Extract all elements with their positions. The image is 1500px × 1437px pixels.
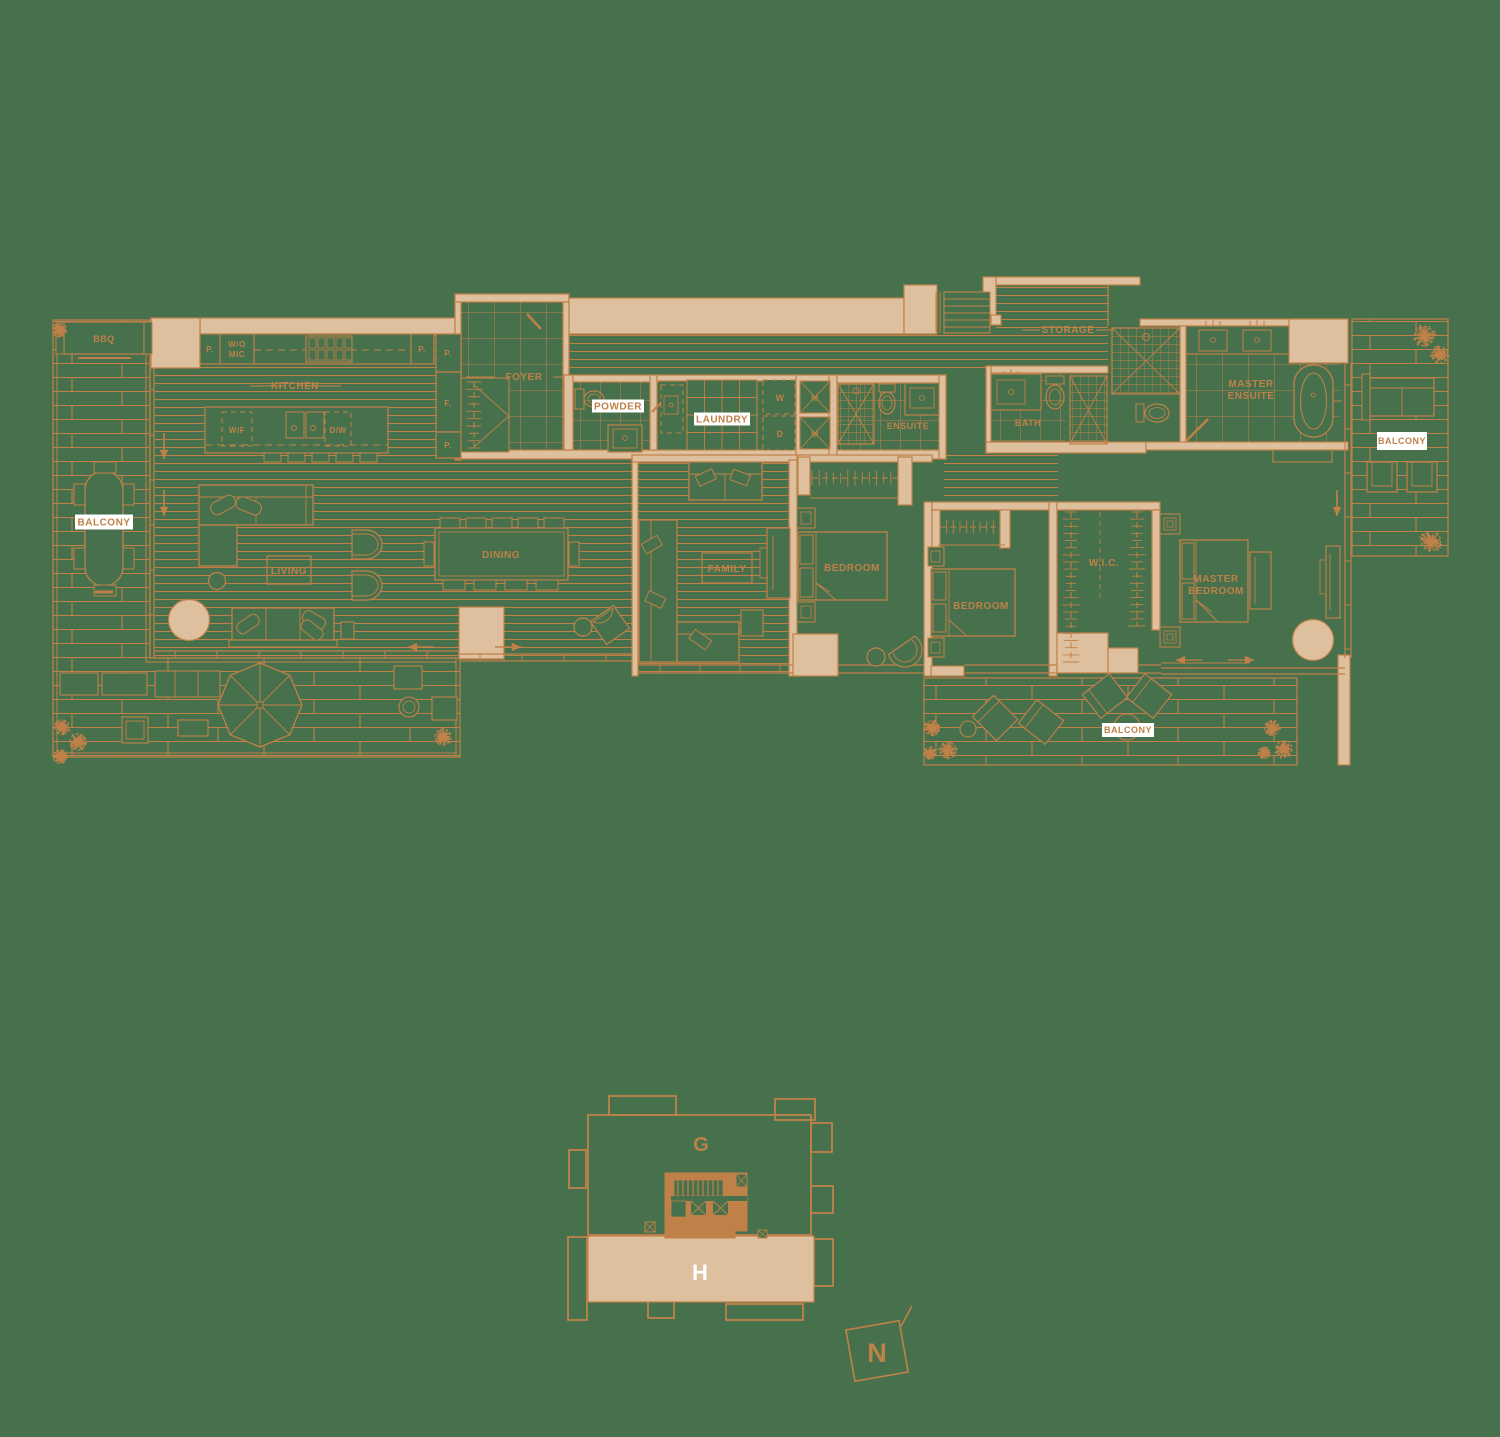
svg-text:P.: P. xyxy=(418,345,426,354)
svg-text:MIC: MIC xyxy=(229,350,245,359)
svg-text:ENSUITE: ENSUITE xyxy=(887,421,930,431)
svg-text:F.: F. xyxy=(444,399,451,408)
svg-text:W.I.C.: W.I.C. xyxy=(1089,558,1119,569)
svg-text:BEDROOM: BEDROOM xyxy=(953,601,1009,612)
svg-text:N: N xyxy=(867,1338,887,1368)
svg-text:MASTER: MASTER xyxy=(1228,379,1274,390)
svg-text:LAUNDRY: LAUNDRY xyxy=(696,415,748,426)
svg-text:D/W: D/W xyxy=(329,426,346,435)
svg-text:DINING: DINING xyxy=(482,550,520,561)
svg-text:D: D xyxy=(777,429,784,439)
svg-text:G: G xyxy=(693,1134,709,1156)
svg-text:BALCONY: BALCONY xyxy=(78,518,131,529)
svg-text:FOYER: FOYER xyxy=(506,372,543,383)
svg-text:P.: P. xyxy=(206,345,214,354)
svg-text:H: H xyxy=(692,1260,708,1285)
svg-text:W/F: W/F xyxy=(229,426,245,435)
svg-text:BATH: BATH xyxy=(1015,418,1041,428)
svg-text:FAMILY: FAMILY xyxy=(708,564,747,575)
svg-text:BEDROOM: BEDROOM xyxy=(824,563,880,574)
svg-text:STORAGE: STORAGE xyxy=(1042,325,1095,336)
svg-text:M: M xyxy=(811,429,819,439)
svg-text:P.: P. xyxy=(444,441,452,450)
svg-text:W/O: W/O xyxy=(228,340,246,349)
svg-text:W: W xyxy=(776,393,785,403)
svg-text:BEDROOM: BEDROOM xyxy=(1188,586,1244,597)
svg-text:M: M xyxy=(811,393,819,403)
svg-text:LIVING: LIVING xyxy=(271,566,307,577)
svg-text:BALCONY: BALCONY xyxy=(1104,725,1152,735)
svg-text:POWDER: POWDER xyxy=(594,402,642,413)
svg-text:BALCONY: BALCONY xyxy=(1378,436,1426,446)
svg-text:BBQ: BBQ xyxy=(93,334,115,344)
svg-text:ENSUITE: ENSUITE xyxy=(1228,391,1275,402)
svg-text:MASTER: MASTER xyxy=(1193,574,1239,585)
svg-text:P.: P. xyxy=(444,349,452,358)
